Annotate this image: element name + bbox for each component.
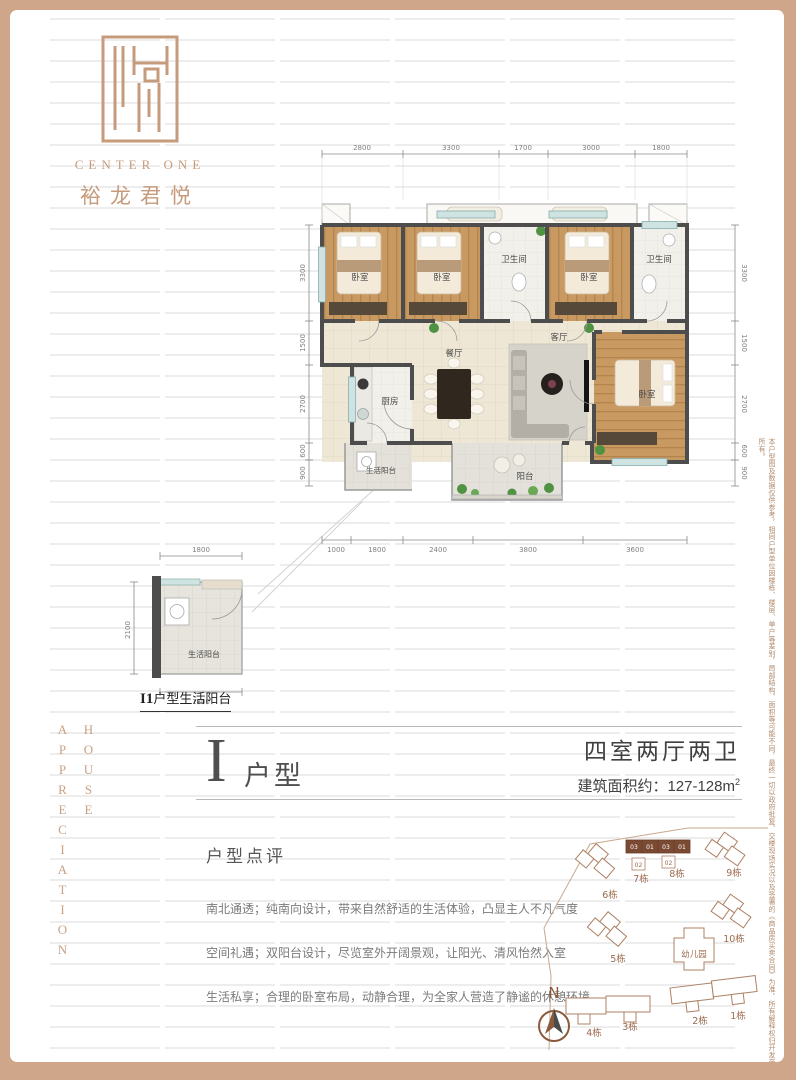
side-word-house: HOUSE — [80, 722, 96, 822]
dim-right-4: 600 — [740, 444, 747, 457]
unit-letter: I — [206, 730, 227, 792]
top-bay — [322, 204, 687, 225]
room-label-kitchen: 厨房 — [381, 396, 398, 407]
label-5: 5栋 — [610, 953, 626, 965]
dim-bottom-3: 2400 — [429, 546, 447, 554]
label-7: 7栋 — [633, 873, 649, 885]
compass-icon: N — [528, 982, 580, 1052]
dim-top-4: 3000 — [582, 144, 600, 152]
building-labels: 6栋 7栋 8栋 9栋 10栋 5栋 4栋 3栋 2栋 1栋 幼儿园 — [586, 867, 746, 1039]
brand-block: CENTER ONE 裕龙君悦 — [40, 35, 240, 210]
unit-area-text: 建筑面积约：127-128m — [577, 778, 735, 795]
detail-caption-text: 户型生活阳台 — [153, 691, 231, 706]
dim-top-1: 2800 — [353, 144, 371, 152]
brand-name-cn: 裕龙君悦 — [40, 180, 240, 210]
title-rule-top — [196, 726, 742, 727]
dim-left-1: 3300 — [299, 264, 307, 282]
detail-caption-prefix: I1 — [140, 691, 153, 707]
dim-right-5: 900 — [740, 466, 747, 479]
label-2: 2栋 — [692, 1015, 708, 1027]
review-line-3: 生活私享；合理的卧室布局，动静合理，为全家人营造了静谧的休憩环境 — [206, 988, 546, 1005]
dim-right-1: 3300 — [740, 264, 747, 282]
room-label-bedroom-2: 卧室 — [433, 272, 451, 283]
room-label-bedroom-4: 卧室 — [638, 389, 656, 400]
unit-type-label: 户型 — [244, 754, 304, 793]
detail-room-label: 生活阳台 — [188, 649, 220, 659]
room-label-living: 客厅 — [550, 332, 568, 343]
room-label-balcony: 阳台 — [516, 471, 533, 482]
dim-bottom-4: 3800 — [519, 546, 537, 554]
label-8: 8栋 — [669, 868, 685, 880]
label-kindergarten: 幼儿园 — [681, 949, 707, 960]
highlight-block: 03 01 03 01 02 02 — [626, 840, 690, 870]
room-label-bedroom-1: 卧室 — [351, 272, 369, 283]
dim-bottom-1: 1000 — [327, 546, 345, 554]
service-balcony-detail: 1800 2100 1800 生活阳台 — [122, 542, 272, 708]
unit-layout: 四室两厅两卫 — [577, 732, 740, 766]
unit-02a: 02 — [635, 862, 643, 869]
dim-left-4: 600 — [299, 444, 307, 457]
side-word-appreciation: APPRECIATION — [54, 722, 70, 962]
detail-dim-left: 2100 — [124, 621, 132, 639]
label-6: 6栋 — [602, 889, 618, 901]
disclaimer-text: 本户型图及数据仅供参考，相同户型单位因楼栋、楼层、单户等差别，局部结构、面积等可… — [756, 438, 776, 1062]
room-label-bath-2: 卫生间 — [646, 254, 672, 265]
unit-area-sup: 2 — [735, 777, 740, 787]
review-line-2: 空间礼遇；双阳台设计，尽览室外开阔景观，让阳光、清风怡然入室 — [206, 944, 546, 961]
unit-summary: 四室两厅两卫 建筑面积约：127-128m2 — [577, 732, 740, 796]
label-1: 1栋 — [730, 1010, 746, 1022]
dim-left-3: 2700 — [299, 395, 307, 413]
label-10: 10栋 — [723, 933, 745, 945]
dim-top-2: 3300 — [442, 144, 460, 152]
brand-logo-icon — [101, 35, 179, 143]
dim-left-2: 1500 — [299, 334, 307, 352]
review-lines: 南北通透；纯南向设计，带来自然舒适的生活体验，凸显主人不凡气度 空间礼遇；双阳台… — [206, 900, 546, 1032]
unit-03a: 03 — [630, 844, 638, 851]
dim-right-3: 2700 — [740, 395, 747, 413]
dim-top-5: 1800 — [652, 144, 670, 152]
dim-bottom-5: 3600 — [626, 546, 644, 554]
unit-area: 建筑面积约：127-128m2 — [577, 775, 740, 796]
unit-03b: 03 — [662, 844, 670, 851]
room-label-bath-1: 卫生间 — [501, 254, 527, 265]
title-rule-bottom — [196, 799, 742, 800]
detail-dim-top: 1800 — [192, 546, 210, 554]
brand-name-en: CENTER ONE — [40, 157, 240, 173]
dim-right-2: 1500 — [740, 334, 747, 352]
detail-caption: I1户型生活阳台 — [140, 688, 231, 712]
room-label-service-balcony: 生活阳台 — [366, 465, 396, 475]
label-3: 3栋 — [622, 1021, 638, 1033]
unit-01a: 01 — [646, 844, 654, 851]
page: CENTER ONE 裕龙君悦 APPRECIATION HOUSE — [10, 10, 784, 1062]
dim-left-5: 900 — [299, 466, 307, 479]
label-4: 4栋 — [586, 1027, 602, 1039]
dim-bottom-2: 1800 — [368, 546, 386, 554]
room-label-dining: 餐厅 — [445, 349, 463, 359]
unit-02b: 02 — [665, 860, 673, 867]
review-line-1: 南北通透；纯南向设计，带来自然舒适的生活体验，凸显主人不凡气度 — [206, 900, 546, 917]
floor-plan: 2800 3300 1700 3000 1800 1000 1800 2400 … — [297, 132, 747, 572]
dim-top-3: 1700 — [514, 144, 532, 152]
label-9: 9栋 — [726, 867, 742, 879]
unit-01b: 01 — [678, 844, 686, 851]
review-title: 户型点评 — [206, 842, 286, 867]
compass-n-label: N — [548, 984, 559, 1002]
room-label-bedroom-3: 卧室 — [580, 272, 598, 283]
